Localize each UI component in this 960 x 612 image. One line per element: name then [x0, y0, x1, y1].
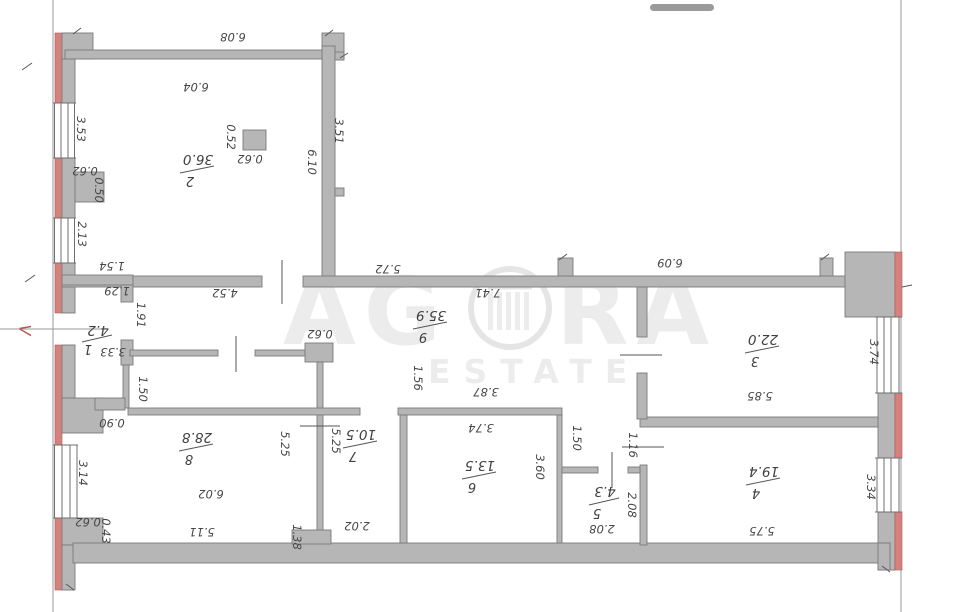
dim-room8-w: 6.02 [198, 487, 224, 501]
dim-room2-col-h: 0.62 [237, 152, 263, 166]
window-314-icon [53, 445, 78, 518]
dim-room6-374: 3.74 [468, 421, 494, 435]
svg-text:36.0: 36.0 [183, 151, 213, 167]
dim-right-win-low: 3.34 [864, 474, 878, 500]
svg-text:4.2: 4.2 [87, 322, 108, 338]
svg-text:13.5: 13.5 [465, 457, 495, 473]
dim-hall-452: 4.52 [212, 286, 238, 300]
svg-text:2: 2 [186, 173, 194, 188]
dim-room2-right: 6.10 [305, 149, 319, 175]
dim-left-win-low: 3.14 [76, 460, 90, 486]
svg-text:3: 3 [751, 353, 759, 368]
dim-left-low-062: 0.62 [75, 515, 101, 529]
dim-top-width: 6.08 [220, 30, 246, 44]
corridor-top-wall [62, 258, 878, 287]
hall-column [305, 343, 333, 362]
dim-room6-360: 3.60 [533, 454, 547, 480]
dim-room5-v: 2.08 [625, 492, 639, 518]
floor-plan-page: AG RA ESTATE V [0, 0, 960, 612]
svg-text:4.3: 4.3 [594, 483, 615, 499]
room-label-4: 4 19.4 [746, 463, 780, 500]
room-label-6: 6 13.5 [462, 457, 496, 494]
window-213-icon [53, 218, 76, 263]
dim-room4-575: 5.75 [749, 524, 775, 538]
dim-hall-154: 1.54 [99, 259, 125, 273]
room-label-3: 3 22.0 [745, 331, 779, 368]
dim-right-win-top: 3.74 [867, 339, 881, 365]
boundary-lines [53, 0, 901, 612]
svg-text:28.8: 28.8 [182, 429, 212, 445]
room-label-5: 5 4.3 [589, 483, 619, 520]
dim-room2-width: 6.04 [183, 80, 209, 94]
dim-left-pier-d: 0.50 [92, 177, 106, 203]
dim-room5-h: 2.08 [589, 522, 615, 536]
entry-mark: V [16, 325, 35, 337]
svg-text:35.9: 35.9 [416, 307, 446, 323]
dim-room1-333: 3.33 [100, 345, 126, 359]
dim-room2-col-w: 0.52 [224, 124, 238, 150]
walls [55, 33, 902, 590]
room-label-7: 7 10.5 [343, 426, 377, 463]
dim-left-win-mid: 2.13 [75, 221, 89, 247]
windows [53, 103, 902, 518]
window-334-icon [875, 458, 902, 512]
svg-text:19.4: 19.4 [749, 463, 779, 479]
room-label-8: 8 28.8 [179, 429, 213, 466]
svg-text:4: 4 [752, 485, 760, 500]
svg-text:10.5: 10.5 [346, 426, 376, 442]
door-ticks [22, 28, 912, 590]
room-label-2: 2 36.0 [180, 151, 214, 188]
exterior-wall-right [845, 252, 902, 570]
dim-left-low-043: 0.43 [99, 518, 113, 544]
dim-room6-387: 3.87 [473, 385, 499, 399]
top-wall [65, 33, 344, 59]
scale-bar [650, 4, 714, 11]
dim-hall-129: 1.29 [104, 284, 130, 298]
svg-text:6: 6 [468, 479, 476, 494]
dim-room7-202: 2.02 [344, 519, 370, 533]
svg-text:1: 1 [84, 341, 92, 356]
floor-plan-svg: AG RA ESTATE V [0, 0, 960, 612]
dim-room8-525: 5.25 [278, 431, 292, 457]
dim-room3-top: 6.09 [657, 256, 683, 270]
dim-hall-col: 0.62 [307, 327, 333, 341]
dim-room8-138: 1.38 [290, 524, 304, 550]
dim-room3-585: 5.85 [747, 389, 773, 403]
svg-text:9: 9 [419, 329, 427, 344]
dim-room2-right-upper: 3.51 [332, 118, 346, 144]
dim-hall-150: 1.50 [136, 376, 150, 402]
dim-hall-191: 1.91 [134, 302, 148, 328]
dim-hall-niche: 1.50 [570, 425, 584, 451]
dim-hall-156: 1.56 [411, 365, 425, 391]
dim-room7-525: 5.25 [329, 428, 343, 454]
svg-text:7: 7 [348, 448, 357, 463]
dim-left-step: 0.90 [99, 416, 125, 430]
dim-left-win-top: 3.53 [74, 116, 88, 142]
room2-right-wall [322, 46, 344, 280]
room2-column [243, 130, 266, 150]
window-353-icon [53, 103, 76, 158]
dim-room4-116: 1.16 [626, 432, 640, 458]
svg-text:8: 8 [185, 451, 193, 466]
dim-left-pier: 0.62 [72, 164, 98, 178]
watermark-tagline: ESTATE [428, 352, 640, 391]
svg-text:5: 5 [593, 505, 601, 520]
dim-hall-572: 5.72 [375, 262, 401, 276]
dim-room8-511: 5.11 [189, 525, 215, 539]
svg-text:22.0: 22.0 [748, 331, 778, 347]
dim-hall-741: 7.41 [475, 286, 501, 300]
